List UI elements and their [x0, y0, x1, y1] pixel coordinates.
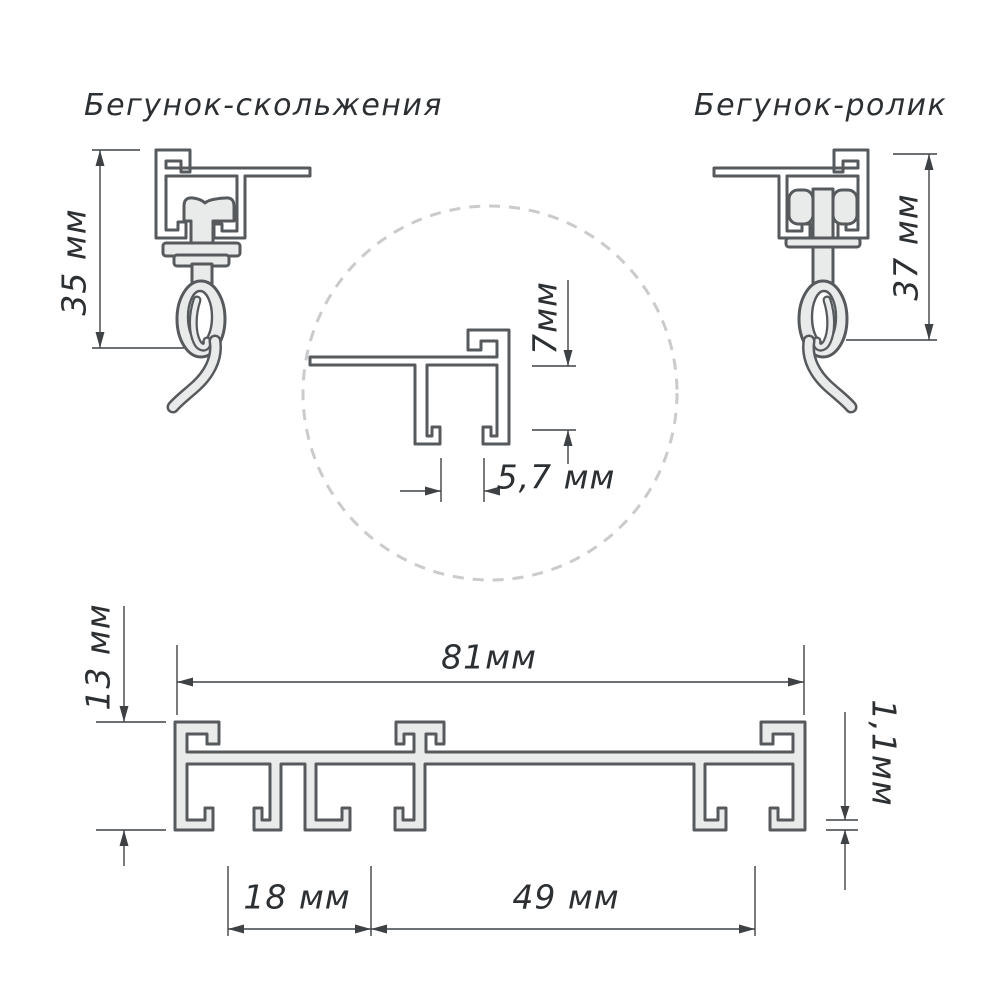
dim-label-49mm: 49 мм — [512, 878, 619, 917]
detail-profile-section — [310, 330, 509, 444]
rail-section-left — [156, 150, 310, 238]
dim-label-13mm: 13 мм — [79, 603, 118, 710]
technical-drawing-page: Бегунок-скольжения Бегунок-ролик 35 мм 3… — [0, 0, 1000, 1000]
dim-label-18mm: 18 мм — [243, 878, 350, 917]
roller-runner-right — [786, 189, 860, 407]
title-slide-runner: Бегунок-скольжения — [84, 88, 443, 123]
dim-label-35mm: 35 мм — [55, 208, 94, 315]
slider-glider-body — [184, 198, 234, 247]
dimension-5-7mm — [400, 458, 500, 502]
dim-label-7mm: 7мм — [526, 281, 565, 355]
profile-cross-section — [175, 722, 805, 830]
detail-magnifier-circle — [303, 206, 677, 580]
dim-label-1-1mm: 1,1мм — [865, 699, 904, 806]
title-roller-runner: Бегунок-ролик — [694, 88, 947, 123]
dim-label-81mm: 81мм — [441, 638, 537, 677]
roller-wheel-right — [833, 190, 857, 224]
drawing-canvas — [0, 0, 1000, 1000]
dim-label-5-7mm: 5,7 мм — [497, 458, 616, 497]
dim-label-37mm: 37 мм — [887, 193, 926, 300]
roller-wheel-left — [789, 190, 813, 224]
dimension-1-1mm — [826, 712, 858, 890]
